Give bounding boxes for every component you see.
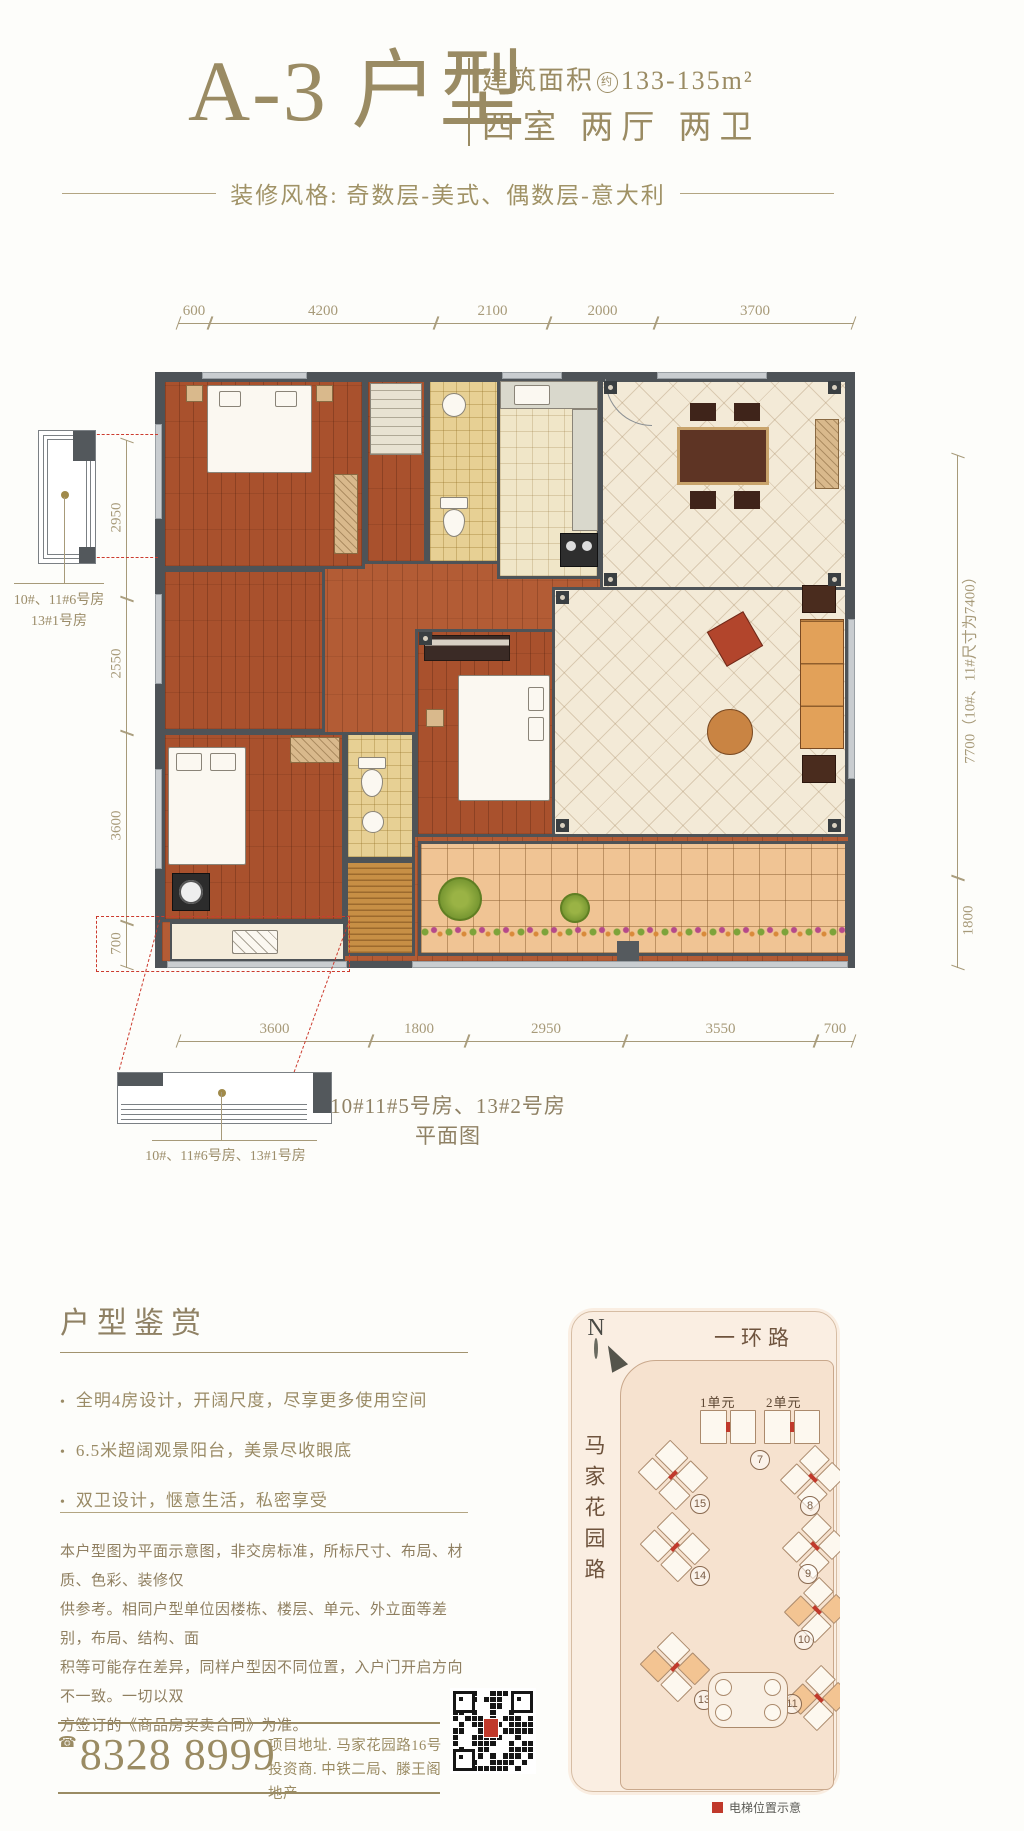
phone-icon: ☎ [58,1733,78,1751]
road-label-left: 马家花园路 [579,1434,609,1589]
window [502,372,562,379]
room-bathroom-2 [345,732,415,860]
feature-item: 全明4房设计，开阔尺度，尽享更多使用空间 [60,1386,480,1411]
elevator-marker [790,1422,794,1432]
building-7-unit-1 [698,1408,758,1446]
disclaimer-line: 供参考。相同户型单位因楼栋、楼层、单元、外立面等差别，布局、结构、面 [60,1596,474,1654]
wall-block [73,431,95,461]
sideboard [815,419,839,489]
qr-logo [483,1718,499,1738]
dim-row-top: 600 4200 2100 2000 3700 [178,298,854,324]
pillow [275,391,297,407]
dim-label: 2000 [549,303,656,320]
page-title: A-3 户型 [188,48,527,134]
building-cell [700,1410,727,1444]
dim-label: 3600 [178,1021,371,1038]
planter-post [617,941,639,961]
armchair [802,755,836,783]
wall-block [79,547,95,563]
dresser [334,474,358,554]
building-cell [730,1410,757,1444]
balcony-detail-top [38,430,96,564]
clubhouse-circle [764,1679,781,1696]
disclaimer-text: 本户型图为平面示意图，非交房标准，所标尺寸、布局、材质、色彩、装修仅 供参考。相… [60,1538,474,1741]
style-line: 装修风格: 奇数层-美式、偶数层-意大利 [62,176,834,210]
pillow [176,753,202,771]
compass-dial [594,1338,598,1359]
room-service-deck [345,860,415,956]
toilet-tank [440,497,468,509]
pillow [210,753,236,771]
area-value: 133-135m² [621,66,754,95]
pillow [528,717,544,741]
balcony-rail-lines [121,1104,307,1120]
dim-label: 2950 [467,1021,625,1038]
north-label: N [574,1316,618,1340]
nightstand [316,385,333,402]
building-cell [794,1410,821,1444]
dim-left-2: 2550 [126,599,127,733]
plant-tree [438,877,482,921]
fan-blades [179,880,203,904]
elevator-marker [808,1473,818,1483]
kitchen-counter-side [572,409,598,531]
disclaimer-line: 积等可能存在差异，同样户型因不同位置，入户门开启方向不一致。一切以双 [60,1654,474,1712]
dim-label: 3700 [656,303,854,320]
stove [560,533,598,567]
address-line-1: 项目地址. 马家花园路16号 [268,1734,443,1758]
disclaimer-line: 本户型图为平面示意图，非交房标准，所标尺寸、布局、材质、色彩、装修仅 [60,1538,474,1596]
feature-item: 6.5米超阔观景阳台，美景尽收眼底 [60,1436,480,1461]
phone-digits: 8328 8999 [80,1730,276,1779]
window [155,424,162,519]
closet-shelves [370,383,422,455]
map-legend: 电梯位置示意 [712,1799,801,1816]
toilet-tank [358,757,386,769]
kitchen-sink [514,385,550,405]
style-rule-right [680,193,834,194]
dim-label: 700 [816,1021,854,1038]
projection-line [92,557,158,558]
reference-dot [218,1089,226,1097]
address-line-2: 投资商. 中铁二局、滕王阁地产 [268,1758,443,1806]
flower-bed [420,925,846,939]
building-7-unit-2 [762,1408,822,1446]
armchair [802,585,836,613]
dining-chair [734,491,760,509]
leader-line [152,1140,317,1141]
coffee-table [707,709,753,755]
road-label-top: 一环路 [714,1322,795,1352]
sofa [800,619,844,749]
elevator-marker [810,1541,820,1551]
title-divider [468,58,470,146]
dim-label: 4200 [210,303,436,320]
wall-block [118,1073,163,1086]
dim-left-1: 2950 [126,440,127,599]
contact-rule-top [58,1722,440,1724]
column-marker [604,573,617,586]
column-marker [828,381,841,394]
leader-line [221,1092,222,1140]
burner [582,541,592,551]
column-marker [556,819,569,832]
dim-right-1: 7700（10#、11#尺寸为7400） [957,455,958,878]
leader-line [14,583,104,584]
room-bedroom-2 [162,569,325,732]
dim-row-bottom: 3600 1800 2950 3550 700 [178,1016,854,1042]
projection-line [92,434,158,435]
phone-number: ☎8328 8999 [58,1733,276,1777]
elevator-marker [812,1605,822,1615]
dim-right-2: 1800 [957,878,958,968]
qr-finder [453,1691,475,1713]
features-list: 全明4房设计，开阔尺度，尽享更多使用空间 6.5米超阔观景阳台，美景尽收眼底 双… [60,1386,480,1536]
column-marker [604,381,617,394]
stool [426,709,444,727]
sink [442,393,466,417]
building-cell [764,1410,791,1444]
reference-dot [61,491,69,499]
balcony-label-line: 13#1号房 [0,611,122,632]
piano [424,635,510,661]
column-marker [828,819,841,832]
balcony-label-top: 10#、11#6号房 13#1号房 [0,590,122,632]
address-block: 项目地址. 马家花园路16号 投资商. 中铁二局、滕王阁地产 [268,1734,443,1806]
building-number-10: 10 [794,1630,814,1650]
dim-label: 1800 [371,1021,467,1038]
sink [362,811,384,833]
approx-circle: 约 [597,72,618,93]
wardrobe [290,737,340,763]
balcony-label-bottom: 10#、11#6号房、13#1号房 [118,1146,333,1167]
clubhouse [708,1672,788,1728]
column-marker [828,573,841,586]
disclaimer-divider [60,1512,468,1513]
layout-text: 四室 两厅 两卫 [482,100,761,148]
floor-plan [155,372,855,968]
legend-text: 电梯位置示意 [729,1799,801,1816]
balcony-detail-bottom [117,1072,332,1124]
dim-left-3: 3600 [126,733,127,923]
brochure-page: A-3 户型 建筑面积约133-135m² 四室 两厅 两卫 装修风格: 奇数层… [0,0,1024,1831]
qr-code [450,1688,536,1774]
window [848,619,855,779]
highlight-dashed-rect [96,916,350,972]
clubhouse-circle [715,1704,732,1721]
area-label: 建筑面积 [482,66,594,95]
qr-finder [453,1749,475,1771]
plant-tree [560,893,590,923]
style-rule-left [62,193,216,194]
features-title: 户型鉴赏 [60,1298,208,1342]
window [155,769,162,869]
qr-finder [511,1691,533,1713]
dining-chair [734,403,760,421]
dining-chair [690,403,716,421]
window [155,594,162,684]
compass-needle [600,1341,628,1372]
site-map: 一环路 马家花园路 N 1单元 2单元 7 15 14 [568,1308,840,1795]
building-number-7: 7 [750,1450,770,1470]
column-marker [556,591,569,604]
plan-caption: 10#11#5号房、13#2号房平面图 [328,1090,568,1150]
column-marker [419,632,432,645]
nightstand [186,385,203,402]
north-compass: N [574,1316,618,1358]
leader-line [64,497,65,583]
features-underline [60,1352,468,1353]
dining-chair [690,491,716,509]
feature-item: 双卫设计，惬意生活，私密享受 [60,1486,480,1511]
window [202,372,307,379]
dining-table [677,427,769,485]
legend-swatch-icon [712,1802,723,1813]
elevator-marker [814,1693,824,1703]
building-number-15: 15 [690,1494,710,1514]
dim-label: 3550 [625,1021,816,1038]
burner [566,541,576,551]
dim-label: 600 [178,303,210,320]
style-text: 装修风格: 奇数层-美式、偶数层-意大利 [230,176,665,210]
pillow [219,391,241,407]
elevator-marker [726,1422,730,1432]
dim-label: 2100 [436,303,549,320]
balcony-label-line: 10#、11#6号房 [0,590,122,611]
area-line: 建筑面积约133-135m² [482,60,754,97]
window [657,372,767,379]
clubhouse-circle [764,1704,781,1721]
pillow [528,687,544,711]
clubhouse-circle [715,1679,732,1696]
balcony-rail [412,961,848,968]
building-number-14: 14 [690,1566,710,1586]
